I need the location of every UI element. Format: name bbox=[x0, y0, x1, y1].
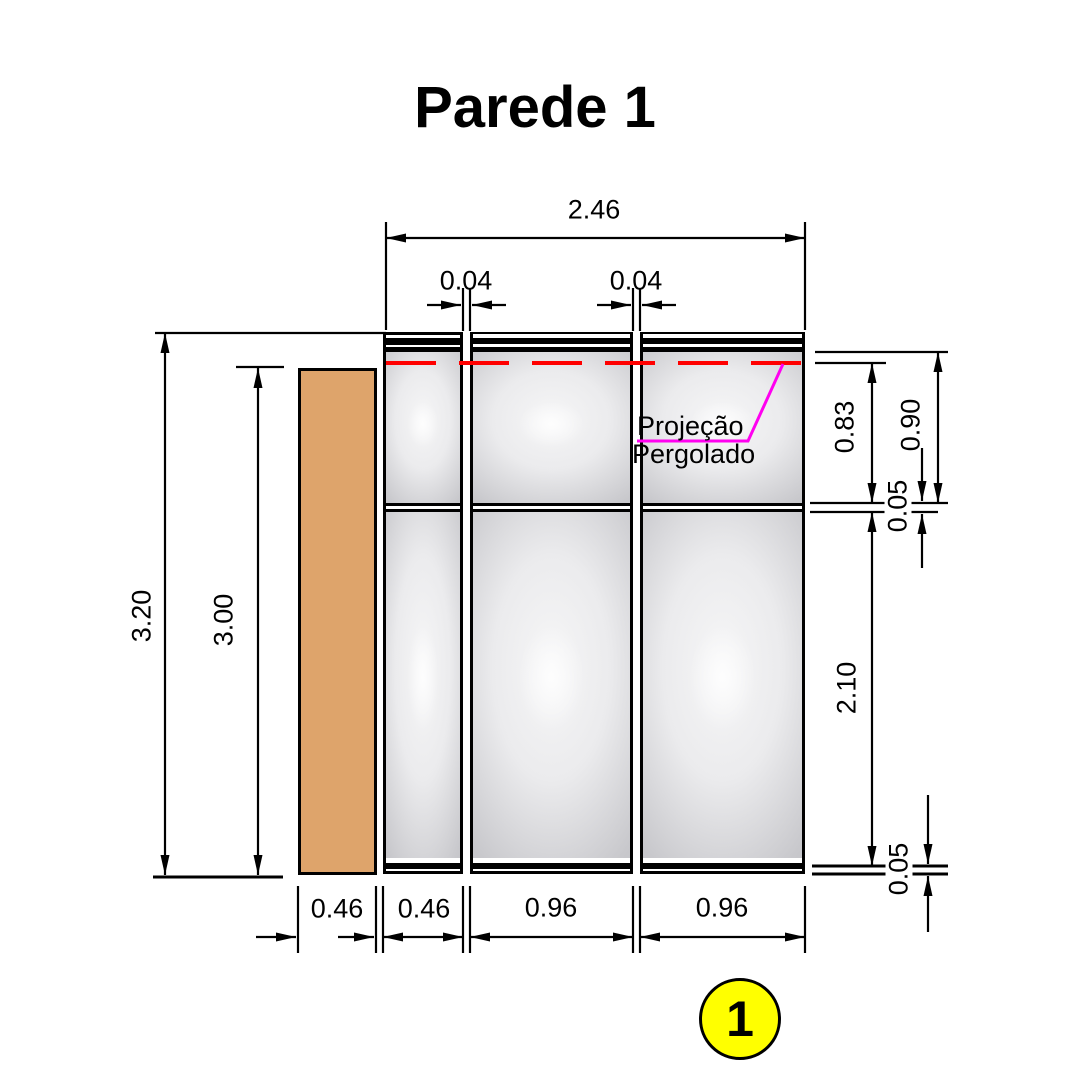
dim-total-width: 2.46 bbox=[568, 197, 621, 224]
projection-label-line1: Projeção bbox=[637, 412, 744, 440]
dim-column-height: 3.00 bbox=[211, 594, 238, 647]
dim-mullion-right: 0.04 bbox=[610, 268, 663, 295]
dim-transom-thickness: 0.05 bbox=[885, 478, 912, 535]
dim-upper-glass-height: 0.83 bbox=[832, 401, 859, 454]
wall-number: 1 bbox=[726, 990, 754, 1048]
wall-number-balloon: 1 bbox=[699, 978, 781, 1060]
dim-mullion-left: 0.04 bbox=[440, 268, 493, 295]
dimension-lines bbox=[165, 238, 938, 937]
projection-label-line2: Pergolado bbox=[632, 440, 755, 468]
dim-upper-section-height: 0.90 bbox=[898, 399, 925, 452]
wall-elevation-drawing: Parede 1 bbox=[0, 0, 1080, 1080]
dim-column-width: 0.46 bbox=[311, 896, 364, 923]
dim-lower-glass-height: 2.10 bbox=[834, 662, 861, 715]
dim-panel3-width: 0.96 bbox=[696, 895, 749, 922]
dim-panel1-width: 0.46 bbox=[398, 896, 451, 923]
extension-lines bbox=[153, 222, 948, 953]
page-title: Parede 1 bbox=[414, 74, 656, 141]
dim-wall-height: 3.20 bbox=[129, 590, 156, 643]
dim-base-thickness: 0.05 bbox=[886, 841, 913, 898]
dim-panel2-width: 0.96 bbox=[525, 895, 578, 922]
